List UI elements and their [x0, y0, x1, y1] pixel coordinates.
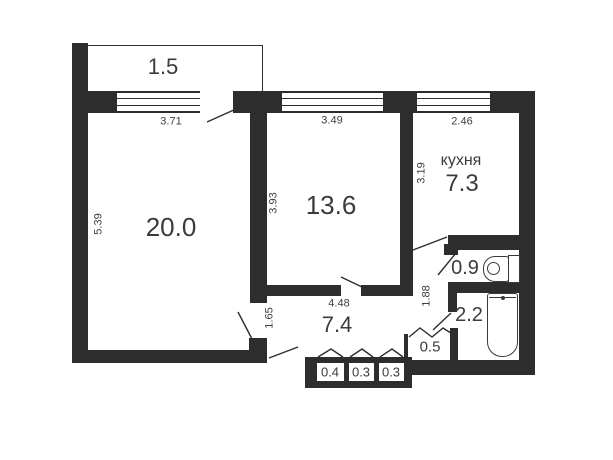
floor-plan: 1.5 20.0 13.6 кухня 7.3 7.4 0.9 2.2 0.5 … [0, 0, 613, 460]
toilet-tank-icon [508, 255, 520, 283]
closet-door-chevron-icon [318, 349, 343, 357]
closet-door-chevron-icon [380, 349, 403, 357]
closet-door-chevron-icon [350, 349, 373, 357]
storage-area-label: 0.5 [420, 340, 441, 355]
balcony-area-label: 1.5 [148, 56, 179, 78]
bedroom-area-label: 13.6 [306, 192, 357, 218]
balcony-door-swing-line [207, 109, 236, 122]
wc-area-label: 0.9 [451, 258, 479, 278]
kitchen-area-label: 7.3 [445, 172, 478, 196]
dim-living-depth: 5.39 [94, 213, 105, 234]
toilet-seat-icon [487, 262, 500, 275]
living-area-label: 20.0 [146, 214, 197, 240]
bedroom-door-swing-line [341, 277, 362, 287]
kitchen-name-label: кухня [441, 153, 482, 169]
dim-hallway-depth: 1.65 [265, 307, 276, 328]
entry-door-swing-line [269, 347, 298, 358]
hallway-area-label: 7.4 [322, 314, 353, 336]
bathtub-drain-icon [501, 296, 505, 300]
dim-kitchen-depth: 3.19 [417, 162, 428, 183]
storage-door-chevron-icon [409, 328, 454, 337]
bathroom-door-swing-line [433, 313, 451, 330]
dim-corridor-length: 1.88 [422, 285, 433, 306]
closet-area-label: 0.3 [352, 366, 370, 379]
dim-bedroom-width: 3.49 [321, 116, 342, 127]
bathtub-icon [487, 293, 518, 357]
living-door-swing-line [238, 312, 252, 339]
dim-living-width: 3.71 [160, 117, 181, 128]
dim-bedroom-depth: 3.93 [269, 192, 280, 213]
closet-area-label: 0.3 [382, 366, 400, 379]
closet-area-label: 0.4 [321, 366, 339, 379]
kitchen-door-swing-line [413, 237, 447, 250]
bathroom-area-label: 2.2 [455, 305, 483, 325]
dim-kitchen-width: 2.46 [451, 117, 472, 128]
dim-hallway-width: 4.48 [328, 299, 349, 310]
